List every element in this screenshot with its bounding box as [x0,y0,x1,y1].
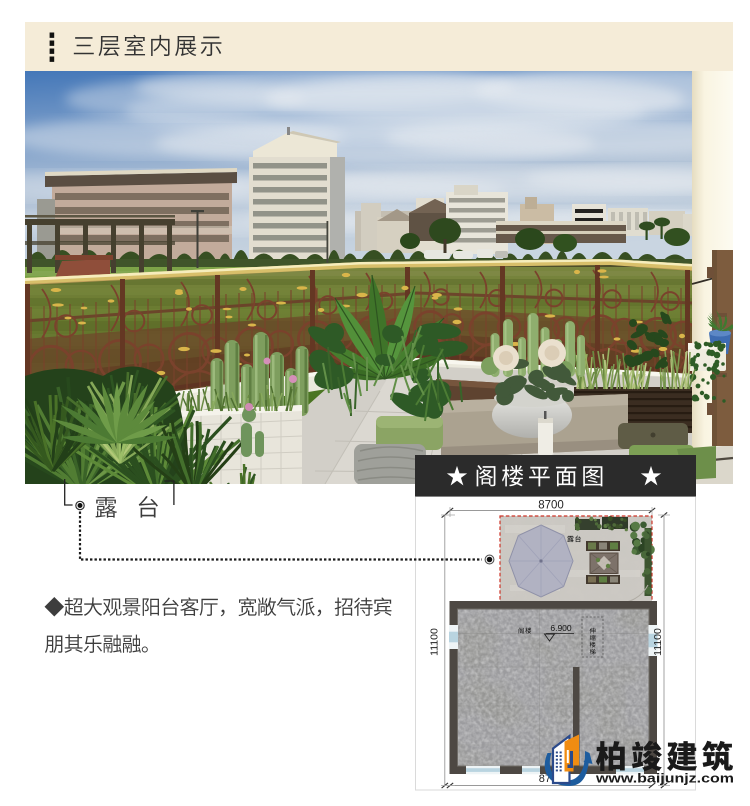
svg-text:8700: 8700 [538,500,564,512]
svg-text:11100: 11100 [652,628,664,656]
svg-text:6.900: 6.900 [550,623,572,633]
svg-text:www.baijunjz.com: www.baijunjz.com [595,771,734,786]
svg-text:11100: 11100 [429,628,441,656]
